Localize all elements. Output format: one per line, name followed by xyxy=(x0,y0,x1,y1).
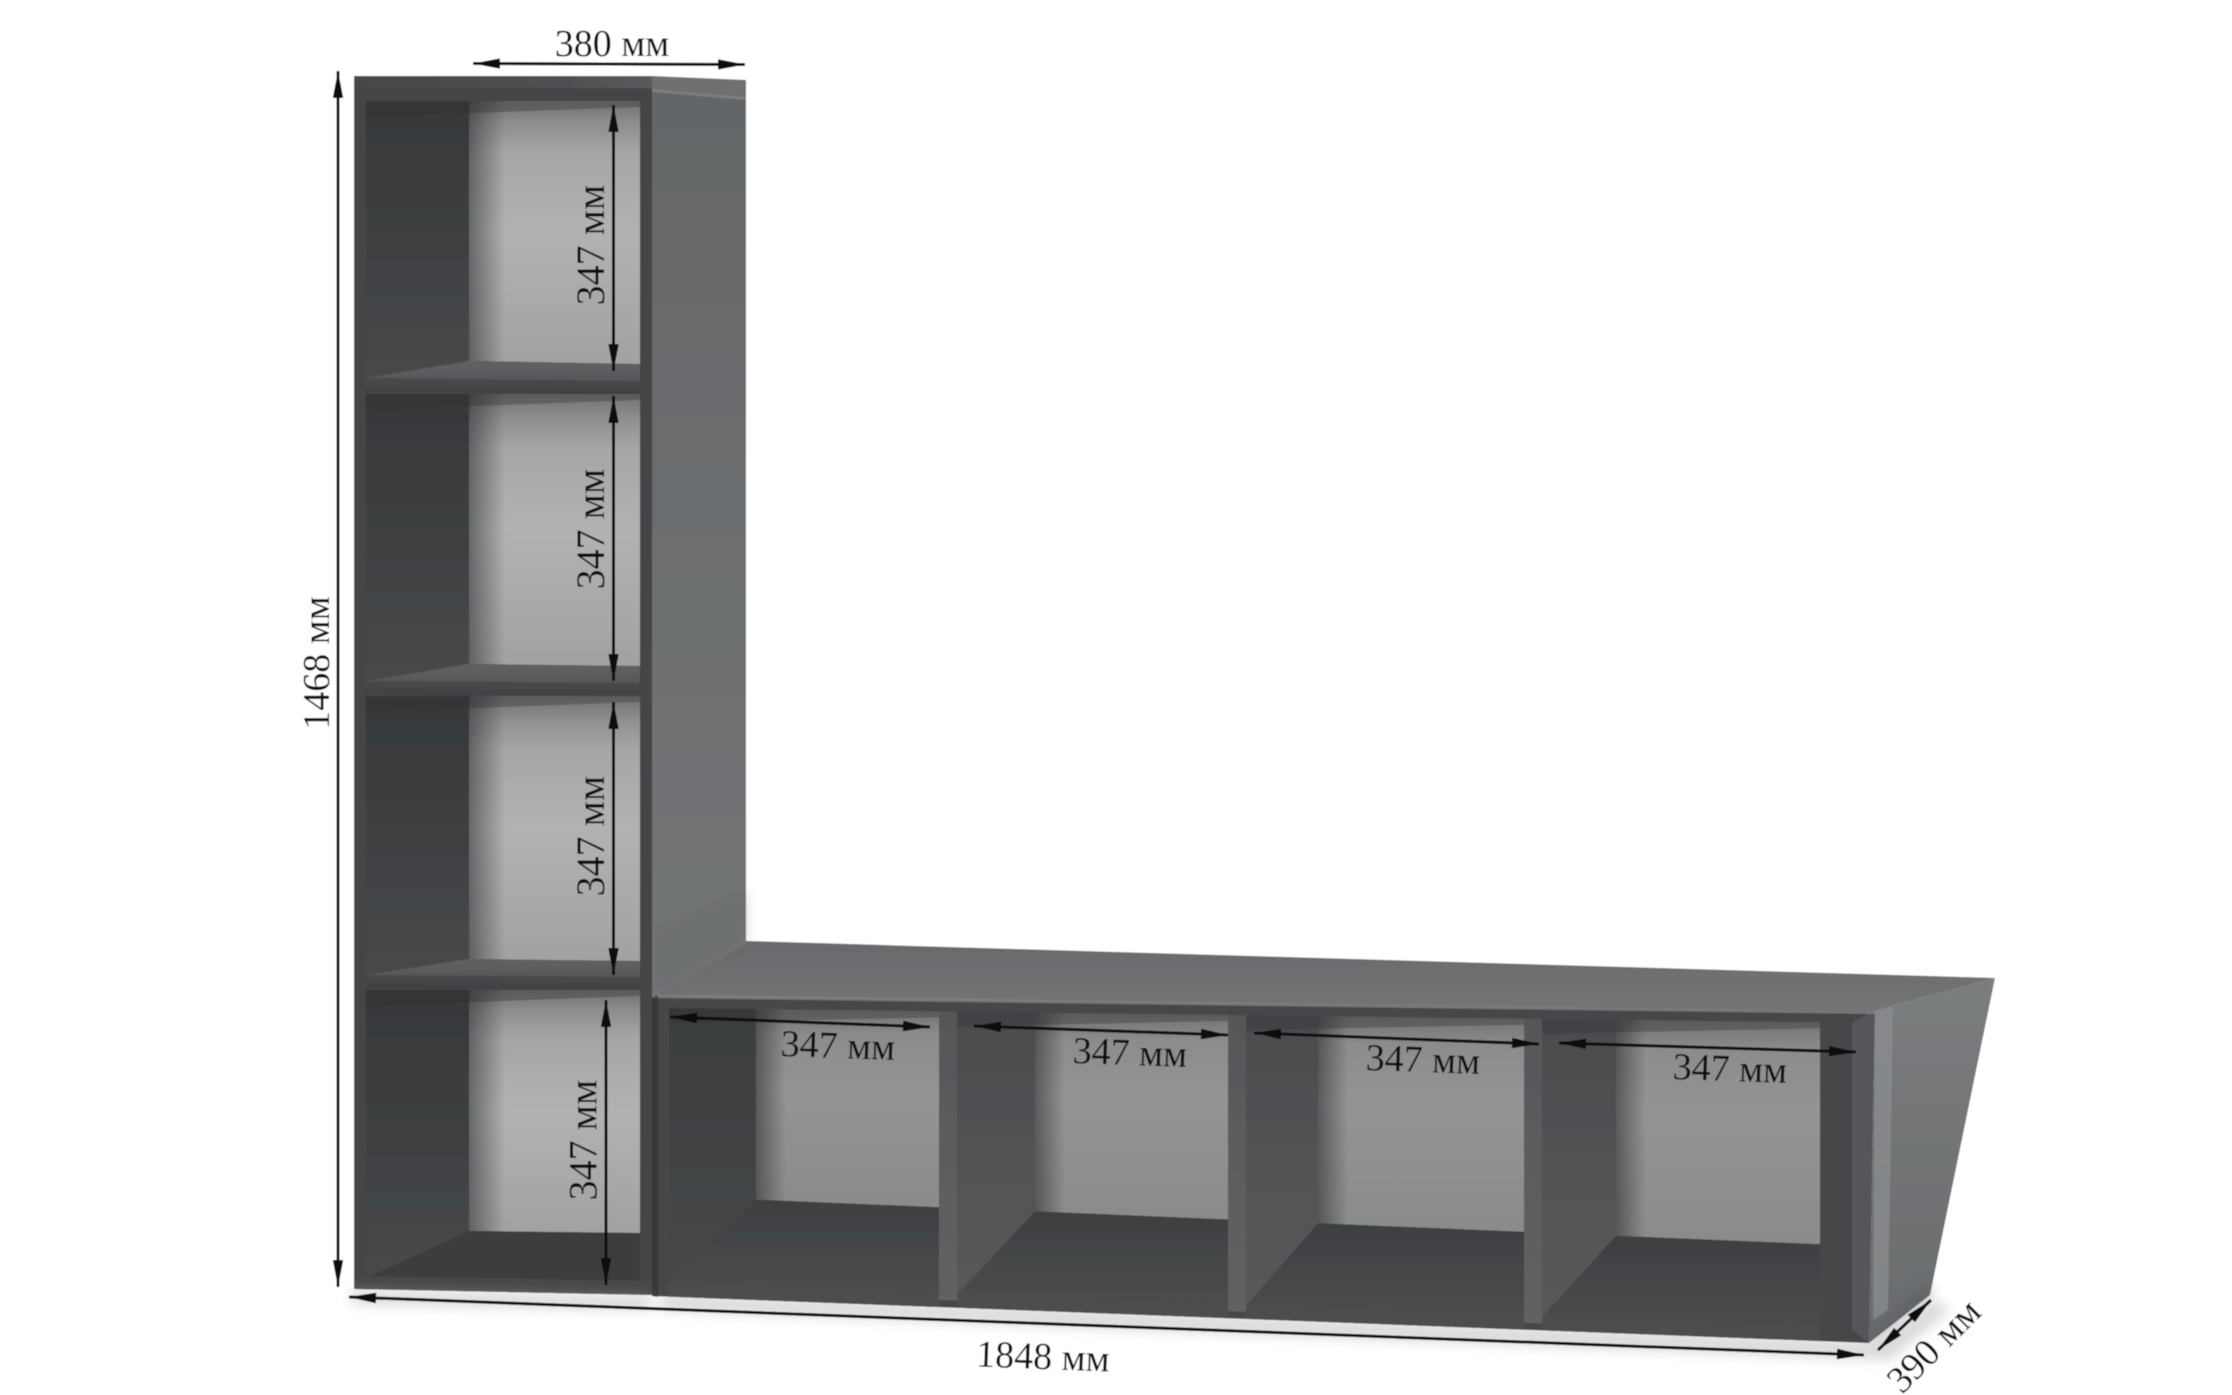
svg-text:1468 мм: 1468 мм xyxy=(296,596,338,730)
svg-text:347 мм: 347 мм xyxy=(1072,1030,1188,1076)
svg-text:347 мм: 347 мм xyxy=(1672,1046,1788,1092)
svg-text:347 мм: 347 мм xyxy=(568,185,613,306)
svg-text:347 мм: 347 мм xyxy=(568,469,613,590)
svg-text:347 мм: 347 мм xyxy=(1365,1037,1481,1083)
svg-text:347 мм: 347 мм xyxy=(568,776,613,897)
svg-text:380 мм: 380 мм xyxy=(555,23,670,65)
svg-text:347 мм: 347 мм xyxy=(780,1023,896,1069)
svg-text:1848 мм: 1848 мм xyxy=(975,1333,1110,1380)
svg-text:347 мм: 347 мм xyxy=(561,1080,606,1201)
